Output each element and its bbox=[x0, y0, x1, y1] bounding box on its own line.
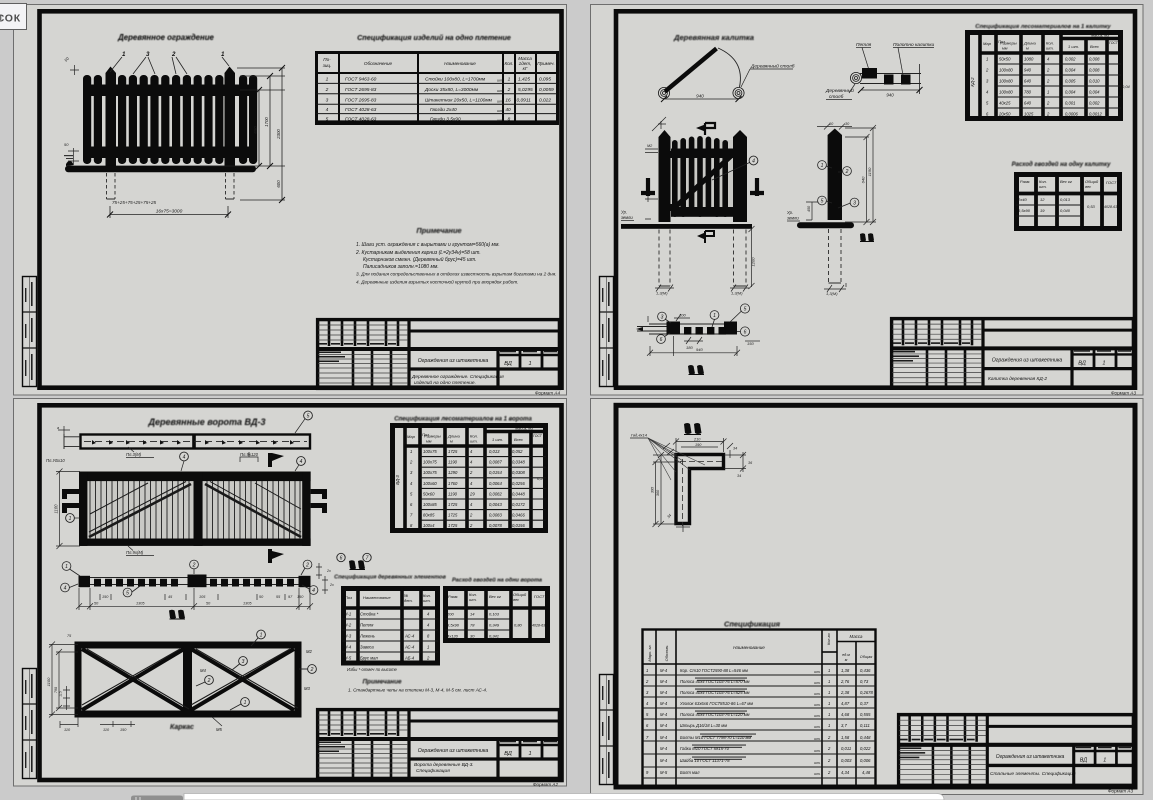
svg-text:Масса, м3: Масса, м3 bbox=[515, 427, 534, 431]
svg-text:0,349: 0,349 bbox=[489, 623, 500, 628]
svg-text:50: 50 bbox=[64, 142, 69, 147]
svg-text:150: 150 bbox=[747, 341, 754, 346]
svg-text:1100: 1100 bbox=[54, 504, 59, 514]
svg-text:Кол-во: Кол-во bbox=[827, 633, 831, 645]
svg-text:1150: 1150 bbox=[867, 167, 872, 176]
svg-text:19: 19 bbox=[1040, 208, 1045, 213]
svg-text:а: а bbox=[57, 426, 59, 430]
svg-text:1,3(М): 1,3(М) bbox=[656, 291, 668, 296]
svg-text:40: 40 bbox=[505, 107, 511, 113]
svg-text:1,3(М): 1,3(М) bbox=[826, 291, 838, 296]
svg-text:0,003: 0,003 bbox=[841, 758, 852, 763]
svg-text:шт.: шт. bbox=[814, 749, 821, 753]
svg-text:М-4: М-4 bbox=[344, 645, 352, 650]
svg-text:Уголок 63х6х6 ГОСТ8510-86: Уголок 63х6х6 ГОСТ8510-86 L=67 мм bbox=[680, 701, 753, 706]
svg-text:7: 7 bbox=[366, 556, 369, 562]
svg-text:1: 1 bbox=[646, 668, 648, 673]
svg-text:мм: мм bbox=[426, 439, 432, 444]
svg-text:Каркас: Каркас bbox=[170, 724, 194, 731]
svg-text:Масса: Масса bbox=[850, 634, 864, 639]
svg-text:2,76: 2,76 bbox=[840, 679, 850, 684]
svg-text:Примеч.: Примеч. bbox=[537, 61, 555, 66]
svg-text:Масса, м3: Масса, м3 bbox=[1091, 34, 1110, 38]
svg-text:2х40: 2х40 bbox=[1017, 197, 1027, 202]
svg-text:Мар: Мар bbox=[983, 41, 992, 46]
svg-text:М-5: М-5 bbox=[660, 770, 668, 775]
svg-text:1: 1 bbox=[508, 77, 511, 83]
svg-text:Формат А4: Формат А4 bbox=[535, 391, 561, 396]
svg-text:1: 1 bbox=[828, 723, 830, 728]
svg-text:200: 200 bbox=[446, 612, 454, 617]
svg-text:1: 1 bbox=[828, 690, 830, 695]
svg-text:0,0087: 0,0087 bbox=[489, 460, 502, 465]
svg-text:0,0012: 0,0012 bbox=[1089, 112, 1102, 117]
svg-text:Деревянная калитка: Деревянная калитка bbox=[673, 33, 754, 42]
svg-text:0,022: 0,022 bbox=[860, 746, 871, 751]
svg-text:Пл.3(М): Пл.3(М) bbox=[126, 452, 142, 457]
svg-text:М-2: М-2 bbox=[344, 623, 352, 628]
svg-text:Спецификация лесоматериалов на: Спецификация лесоматериалов на 1 ворота bbox=[394, 416, 532, 423]
svg-text:Петля: Петля bbox=[856, 42, 872, 48]
svg-text:0,004: 0,004 bbox=[1065, 68, 1076, 73]
svg-text:0,002: 0,002 bbox=[1065, 57, 1076, 62]
svg-text:Петля: Петля bbox=[360, 623, 374, 628]
svg-text:4: 4 bbox=[312, 588, 315, 594]
svg-text:190: 190 bbox=[695, 443, 702, 447]
svg-text:0,052: 0,052 bbox=[512, 449, 523, 454]
svg-text:М-4: М-4 bbox=[660, 746, 668, 751]
svg-text:0,0043: 0,0043 bbox=[489, 502, 502, 507]
svg-text:50х60: 50х60 bbox=[423, 491, 435, 496]
svg-text:100х80: 100х80 bbox=[999, 79, 1013, 84]
svg-text:100: 100 bbox=[679, 313, 686, 318]
svg-text:6: 6 bbox=[340, 556, 343, 562]
svg-text:50х50: 50х50 bbox=[999, 57, 1011, 62]
svg-text:Доски 35х80, L=3000мм: Доски 35х80, L=3000мм bbox=[424, 87, 479, 93]
svg-text:1: 1 bbox=[410, 449, 412, 454]
svg-text:8: 8 bbox=[508, 116, 511, 122]
svg-text:0,004: 0,004 bbox=[1065, 90, 1076, 95]
svg-text:Обознач.: Обознач. bbox=[664, 645, 669, 662]
svg-text:790: 790 bbox=[54, 687, 58, 693]
svg-text:1,58: 1,58 bbox=[841, 735, 850, 740]
svg-text:5,0295: 5,0295 bbox=[518, 87, 533, 93]
svg-text:Полоса 40х4 ГОСТ103-76 L=570: Полоса 40х4 ГОСТ103-76 L=570 мм bbox=[680, 679, 750, 684]
svg-text:ГОСТ: ГОСТ bbox=[533, 434, 543, 438]
svg-text:шт.: шт. bbox=[497, 99, 504, 103]
svg-text:М-4: М-4 bbox=[660, 701, 668, 706]
svg-text:0,2678: 0,2678 bbox=[860, 690, 873, 695]
svg-text:0,436: 0,436 bbox=[860, 668, 871, 673]
svg-text:0,37: 0,37 bbox=[860, 701, 869, 706]
svg-text:150: 150 bbox=[297, 595, 304, 599]
svg-text:150: 150 bbox=[120, 728, 127, 732]
svg-text:Наименование: Наименование bbox=[733, 645, 765, 650]
svg-text:Болт мал: Болт мал bbox=[680, 770, 700, 775]
svg-text:2: 2 bbox=[305, 563, 309, 569]
svg-text:0,0911: 0,0911 bbox=[517, 97, 532, 103]
svg-text:шт.: шт. bbox=[423, 598, 431, 603]
svg-text:80х85: 80х85 bbox=[423, 513, 435, 518]
svg-text:1: 1 bbox=[713, 313, 716, 319]
svg-text:Деревянный: Деревянный bbox=[825, 87, 854, 94]
svg-text:4,87: 4,87 bbox=[841, 701, 850, 706]
svg-text:4: 4 bbox=[326, 107, 329, 113]
svg-text:4: 4 bbox=[64, 586, 67, 592]
svg-text:4. Деревянные изделия взрытых: 4. Деревянные изделия взрытых косточной … bbox=[356, 279, 519, 285]
svg-text:0,21: 0,21 bbox=[537, 476, 545, 481]
svg-text:650: 650 bbox=[253, 126, 258, 134]
svg-text:Спецификация: Спецификация bbox=[416, 768, 450, 774]
svg-text:шт.: шт. bbox=[814, 725, 821, 729]
svg-text:0,040: 0,040 bbox=[1060, 208, 1071, 213]
svg-text:5: 5 bbox=[821, 199, 824, 205]
svg-text:М4: М4 bbox=[200, 668, 206, 673]
svg-text:2: 2 bbox=[207, 678, 211, 684]
svg-text:3: 3 bbox=[326, 97, 329, 103]
svg-text:шт.: шт. bbox=[814, 737, 821, 741]
svg-text:1 шт.: 1 шт. bbox=[1068, 44, 1079, 49]
svg-text:Пл.УБх10: Пл.УБх10 bbox=[46, 458, 65, 463]
svg-text:ВД-3: ВД-3 bbox=[395, 475, 400, 485]
svg-text:4: 4 bbox=[752, 159, 755, 165]
svg-text:5: 5 bbox=[126, 591, 129, 597]
svg-text:360: 360 bbox=[656, 489, 660, 496]
svg-text:1. Шаги уст. ограждения с выр: 1. Шаги уст. ограждения с вырытами и гру… bbox=[356, 242, 500, 248]
svg-text:Вес кг: Вес кг bbox=[1060, 179, 1072, 184]
svg-text:0,0154: 0,0154 bbox=[489, 470, 502, 475]
svg-text:Ур.: Ур. bbox=[621, 210, 627, 215]
svg-text:Гвозди 3,5х90: Гвозди 3,5х90 bbox=[430, 116, 461, 122]
svg-text:АС-4: АС-4 bbox=[404, 645, 415, 650]
svg-text:шт.: шт. bbox=[497, 79, 504, 83]
svg-text:Стойки 100х80, L=1700мм: Стойки 100х80, L=1700мм bbox=[425, 76, 486, 83]
svg-text:78: 78 bbox=[470, 623, 475, 628]
svg-text:Формат А2: Формат А2 bbox=[533, 782, 559, 787]
svg-text:шт.: шт. bbox=[469, 597, 477, 602]
svg-text:АБ-4: АБ-4 bbox=[404, 656, 415, 661]
svg-text:ед.м: ед.м bbox=[842, 653, 850, 657]
svg-text:0,006: 0,006 bbox=[860, 758, 871, 763]
svg-text:0,53: 0,53 bbox=[1087, 204, 1096, 209]
svg-text:1: 1 bbox=[122, 51, 126, 58]
svg-text:м: м bbox=[1026, 46, 1029, 51]
svg-text:0,004: 0,004 bbox=[1089, 90, 1100, 95]
svg-text:4028-63: 4028-63 bbox=[1104, 205, 1117, 209]
svg-text:1190: 1190 bbox=[448, 491, 458, 496]
svg-text:0,002: 0,002 bbox=[1089, 101, 1100, 106]
svg-text:Гвозди 2х40: Гвозди 2х40 bbox=[430, 107, 457, 113]
svg-text:1760: 1760 bbox=[448, 481, 458, 486]
svg-text:0,0448: 0,0448 bbox=[512, 491, 525, 496]
svg-text:шт.: шт. bbox=[814, 681, 821, 685]
svg-text:0,555: 0,555 bbox=[860, 712, 871, 717]
svg-text:Кор. Ст10 ГОСТ2590-88: Кор. Ст10 ГОСТ2590-88 L=546 мм bbox=[680, 668, 748, 673]
svg-text:шт.: шт. bbox=[814, 670, 821, 674]
svg-text:75+25+75+25+75+25: 75+25+75+25+75+25 bbox=[112, 200, 157, 205]
svg-text:Штакетник 20х50, L=1100мм: Штакетник 20х50, L=1100мм bbox=[425, 97, 493, 103]
svg-text:Деревянное ограждение. Специфи: Деревянное ограждение. Спецификация bbox=[411, 374, 504, 380]
svg-text:М5: М5 bbox=[216, 727, 222, 732]
svg-text:450: 450 bbox=[807, 205, 811, 212]
svg-text:4: 4 bbox=[183, 455, 186, 461]
svg-text:1080: 1080 bbox=[1024, 57, 1034, 62]
svg-text:0,0078: 0,0078 bbox=[489, 523, 502, 528]
svg-text:шт.: шт. bbox=[814, 761, 821, 765]
svg-text:Обозначение: Обозначение bbox=[364, 61, 393, 66]
svg-text:М-4: М-4 bbox=[660, 735, 668, 740]
svg-text:1: 1 bbox=[326, 77, 329, 83]
svg-text:0,0064: 0,0064 bbox=[489, 481, 502, 486]
svg-text:1: 1 bbox=[1047, 90, 1049, 95]
svg-text:100х80: 100х80 bbox=[999, 68, 1013, 73]
svg-text:0,008: 0,008 bbox=[1089, 57, 1100, 62]
svg-text:4: 4 bbox=[300, 459, 303, 465]
svg-text:180: 180 bbox=[686, 345, 693, 350]
svg-text:2: 2 bbox=[507, 87, 511, 93]
svg-text:1200: 1200 bbox=[751, 257, 756, 267]
svg-text:1725: 1725 bbox=[448, 502, 458, 507]
svg-text:100х80: 100х80 bbox=[999, 90, 1013, 95]
svg-text:1100: 1100 bbox=[46, 677, 51, 686]
svg-text:1,3(М): 1,3(М) bbox=[731, 291, 743, 296]
svg-text:3,5х90: 3,5х90 bbox=[1018, 208, 1031, 213]
svg-text:Мар: Мар bbox=[407, 434, 416, 439]
svg-text:Гвд,4х14: Гвд,4х14 bbox=[631, 433, 648, 438]
svg-text:Общая: Общая bbox=[860, 655, 873, 659]
svg-text:1: 1 bbox=[828, 668, 830, 673]
svg-text:100х85: 100х85 bbox=[423, 502, 437, 507]
svg-text:1: 1 bbox=[427, 645, 429, 650]
svg-text:3,7: 3,7 bbox=[841, 723, 847, 728]
svg-text:0,0006: 0,0006 bbox=[1065, 112, 1078, 117]
svg-text:1: 1 bbox=[821, 163, 824, 169]
svg-text:м: м bbox=[450, 439, 453, 444]
svg-text:2,38: 2,38 bbox=[840, 690, 850, 695]
svg-text:600: 600 bbox=[276, 180, 281, 188]
svg-text:1: 1 bbox=[244, 700, 247, 706]
svg-text:0,0348: 0,0348 bbox=[512, 460, 525, 465]
svg-text:вес: вес bbox=[513, 597, 519, 602]
svg-text:Ур.: Ур. bbox=[787, 210, 793, 215]
svg-text:12: 12 bbox=[1040, 197, 1045, 202]
svg-text:34: 34 bbox=[733, 447, 737, 451]
svg-text:Палисадников заполн.=1080 мм.: Палисадников заполн.=1080 мм. bbox=[363, 264, 439, 270]
svg-text:Вес кг: Вес кг bbox=[489, 594, 501, 599]
svg-text:0,0059: 0,0059 bbox=[539, 87, 554, 93]
svg-text:Всех: Всех bbox=[1090, 44, 1100, 49]
svg-text:Деревянный столб: Деревянный столб bbox=[750, 63, 795, 70]
svg-text:М-1: М-1 bbox=[344, 612, 351, 617]
svg-text:0,0308: 0,0308 bbox=[512, 470, 525, 475]
svg-text:ГОСТ: ГОСТ bbox=[534, 594, 545, 599]
svg-text:16: 16 bbox=[505, 97, 511, 103]
svg-text:1. Стандартные чепы на степени: 1. Стандартные чепы на степени М-3, М-4,… bbox=[348, 688, 487, 693]
svg-text:2: 2 bbox=[310, 667, 314, 673]
svg-text:4,34: 4,34 bbox=[841, 770, 850, 775]
svg-text:М-3: М-3 bbox=[344, 634, 352, 639]
svg-text:Кол.: Кол. bbox=[504, 61, 513, 66]
svg-text:1: 1 bbox=[828, 701, 830, 706]
svg-text:3: 3 bbox=[661, 315, 664, 321]
svg-text:640: 640 bbox=[861, 176, 866, 183]
svg-text:Завеса: Завеса bbox=[360, 645, 374, 650]
svg-text:14: 14 bbox=[470, 612, 475, 617]
svg-text:КД-2: КД-2 bbox=[970, 77, 975, 87]
svg-text:105: 105 bbox=[199, 595, 206, 599]
svg-text:100х75: 100х75 bbox=[423, 470, 437, 475]
svg-text:шт.: шт. bbox=[497, 118, 504, 122]
svg-text:Ворота деревянные ВД-3.: Ворота деревянные ВД-3. bbox=[414, 762, 474, 768]
svg-text:3: 3 bbox=[146, 51, 150, 58]
svg-text:210: 210 bbox=[693, 438, 701, 442]
svg-text:0,011: 0,011 bbox=[841, 746, 851, 751]
svg-text:земли: земли bbox=[786, 216, 799, 221]
svg-text:0,0172: 0,0172 bbox=[512, 502, 525, 507]
svg-text:780: 780 bbox=[1024, 90, 1032, 95]
svg-text:Деревянные ворота ВД-3: Деревянные ворота ВД-3 bbox=[148, 417, 266, 427]
svg-text:Примечание: Примечание bbox=[362, 679, 402, 686]
svg-text:Примечание: Примечание bbox=[416, 226, 461, 235]
svg-text:М-4: М-4 bbox=[660, 690, 668, 695]
svg-text:шт.: шт. bbox=[470, 439, 478, 444]
svg-text:5: 5 bbox=[744, 307, 747, 313]
svg-text:М2: М2 bbox=[306, 649, 312, 654]
svg-text:0,0156: 0,0156 bbox=[512, 523, 525, 528]
svg-text:М2: М2 bbox=[647, 144, 653, 148]
svg-text:0,0256: 0,0256 bbox=[512, 481, 525, 486]
svg-text:395: 395 bbox=[651, 486, 655, 493]
svg-text:1305: 1305 bbox=[243, 602, 252, 606]
svg-text:2: 2 bbox=[192, 563, 196, 569]
svg-text:шт.: шт. bbox=[814, 692, 821, 696]
svg-text:шт.: шт. bbox=[814, 772, 821, 776]
svg-text:0,022: 0,022 bbox=[539, 97, 551, 103]
svg-text:4,68: 4,68 bbox=[841, 712, 850, 717]
svg-text:100х4: 100х4 bbox=[423, 523, 435, 528]
svg-text:40х25: 40х25 bbox=[999, 101, 1011, 106]
svg-text:0,341: 0,341 bbox=[489, 634, 499, 639]
svg-text:ГОСТ 2695-83: ГОСТ 2695-83 bbox=[345, 97, 377, 103]
svg-text:М3: М3 bbox=[304, 686, 310, 691]
svg-text:Стальные элементы. Спецификаци: Стальные элементы. Спецификация bbox=[990, 771, 1076, 777]
svg-text:29: 29 bbox=[469, 491, 475, 496]
svg-text:940: 940 bbox=[1024, 68, 1032, 73]
svg-text:100х75: 100х75 bbox=[423, 460, 437, 465]
svg-text:2х: 2х bbox=[329, 583, 334, 587]
svg-text:1: 1 bbox=[828, 679, 830, 684]
svg-text:110: 110 bbox=[64, 728, 71, 732]
svg-text:Формат А3: Формат А3 bbox=[1111, 391, 1137, 396]
svg-text:110: 110 bbox=[103, 728, 110, 732]
svg-text:Спецификация изделий на одно п: Спецификация изделий на одно плетение bbox=[357, 33, 511, 42]
svg-text:шт.: шт. bbox=[497, 109, 504, 113]
svg-text:1,38: 1,38 bbox=[841, 668, 850, 673]
svg-text:Избы *-отмеч по высоте: Избы *-отмеч по высоте bbox=[347, 667, 398, 672]
svg-text:М-4: М-4 bbox=[660, 668, 668, 673]
svg-text:Спецификация лесоматериалов на: Спецификация лесоматериалов на 1 калитку bbox=[975, 23, 1111, 30]
svg-text:0,0083: 0,0083 bbox=[489, 513, 502, 518]
svg-text:1,425: 1,425 bbox=[518, 77, 530, 83]
svg-text:шт.: шт. bbox=[814, 714, 821, 718]
svg-text:ГОСТ 4028-63: ГОСТ 4028-63 bbox=[345, 116, 377, 122]
svg-text:Пл.9х(М): Пл.9х(М) bbox=[126, 550, 144, 555]
svg-text:Лежень: Лежень bbox=[359, 634, 375, 639]
svg-text:Разм.: Разм. bbox=[1020, 179, 1030, 184]
svg-text:1025: 1025 bbox=[1024, 112, 1034, 117]
svg-text:мм: мм bbox=[1002, 46, 1008, 51]
svg-text:940: 940 bbox=[696, 94, 704, 99]
svg-text:940: 940 bbox=[696, 347, 703, 352]
svg-text:940: 940 bbox=[886, 93, 894, 98]
svg-text:0,0082: 0,0082 bbox=[489, 491, 502, 496]
svg-text:Гайки М10 ГОСТ 5915-70: Гайки М10 ГОСТ 5915-70 bbox=[680, 746, 730, 751]
svg-text:1: 1 bbox=[65, 564, 68, 570]
svg-text:шт.: шт. bbox=[1046, 46, 1054, 51]
svg-text:115: 115 bbox=[59, 691, 63, 697]
svg-text:Разм.: Разм. bbox=[448, 594, 458, 599]
svg-text:земли: земли bbox=[620, 215, 633, 220]
svg-text:шт.: шт. bbox=[814, 703, 821, 707]
svg-text:1: 1 bbox=[828, 712, 830, 717]
svg-text:зиц.: зиц. bbox=[322, 63, 332, 68]
svg-text:шт.: шт. bbox=[1039, 184, 1047, 189]
svg-text:30: 30 bbox=[470, 634, 475, 639]
svg-text:1: 1 bbox=[69, 516, 72, 522]
svg-text:Наименование: Наименование bbox=[444, 61, 476, 66]
svg-text:Полоса 40х4 ГОСТ103-76 L=120: Полоса 40х4 ГОСТ103-76 L=120 мм bbox=[680, 712, 750, 717]
svg-text:100х60: 100х60 bbox=[423, 481, 437, 486]
svg-text:4,48: 4,48 bbox=[862, 770, 871, 775]
svg-text:шт.: шт. bbox=[497, 89, 504, 93]
svg-text:столб: столб bbox=[829, 94, 844, 100]
svg-text:1190: 1190 bbox=[448, 460, 458, 465]
svg-text:Стойка *: Стойка * bbox=[360, 612, 379, 617]
svg-text:Болты М10 ГОСТ 7798-70 L=110: Болты М10 ГОСТ 7798-70 L=110 мм bbox=[680, 735, 751, 740]
svg-text:3: 3 bbox=[242, 659, 245, 665]
svg-text:3. Для подания сопредельственн: 3. Для подания сопредельственных в отдел… bbox=[356, 272, 557, 277]
svg-text:Штырь Д16/18 L=30 мм: Штырь Д16/18 L=30 мм bbox=[680, 723, 727, 728]
svg-text:Полотно калитки: Полотно калитки bbox=[893, 42, 935, 48]
svg-text:1725: 1725 bbox=[448, 449, 458, 454]
svg-text:1725: 1725 bbox=[448, 513, 458, 518]
svg-text:Расход гвоздей на одну калитку: Расход гвоздей на одну калитку bbox=[1012, 161, 1112, 168]
svg-text:м: м bbox=[845, 658, 848, 662]
svg-text:ГОСТ 9463-60: ГОСТ 9463-60 bbox=[345, 77, 377, 83]
svg-text:М-4: М-4 bbox=[660, 758, 668, 763]
svg-text:4028-63: 4028-63 bbox=[532, 624, 545, 628]
svg-text:1: 1 bbox=[260, 633, 263, 639]
svg-text:2. Кустарникам выделения карни: 2. Кустарникам выделения карниз (L=2у34н… bbox=[355, 250, 481, 256]
svg-text:2: 2 bbox=[845, 169, 849, 175]
svg-text:дет.: дет. bbox=[404, 598, 413, 603]
svg-text:2: 2 bbox=[325, 87, 329, 93]
svg-text:АС-4: АС-4 bbox=[404, 634, 415, 639]
svg-text:3: 3 bbox=[853, 201, 856, 207]
svg-text:ГОСТ: ГОСТ bbox=[1106, 180, 1117, 185]
svg-text:0,04: 0,04 bbox=[1122, 84, 1131, 89]
svg-text:2х: 2х bbox=[326, 569, 331, 573]
svg-text:0,103: 0,103 bbox=[489, 612, 500, 617]
svg-text:Спецификация деревянных элемен: Спецификация деревянных элементов bbox=[334, 574, 446, 581]
svg-text:1290: 1290 bbox=[448, 470, 458, 475]
svg-text:Всех: Всех bbox=[514, 437, 524, 442]
svg-text:6: 6 bbox=[660, 337, 663, 343]
svg-text:Полоса 40х4 ГОСТ103-76 L=525: Полоса 40х4 ГОСТ103-76 L=525 мм bbox=[680, 690, 750, 695]
svg-text:0,001: 0,001 bbox=[1065, 101, 1075, 106]
svg-text:1: 1 bbox=[221, 51, 225, 58]
svg-text:2300: 2300 bbox=[276, 129, 281, 140]
